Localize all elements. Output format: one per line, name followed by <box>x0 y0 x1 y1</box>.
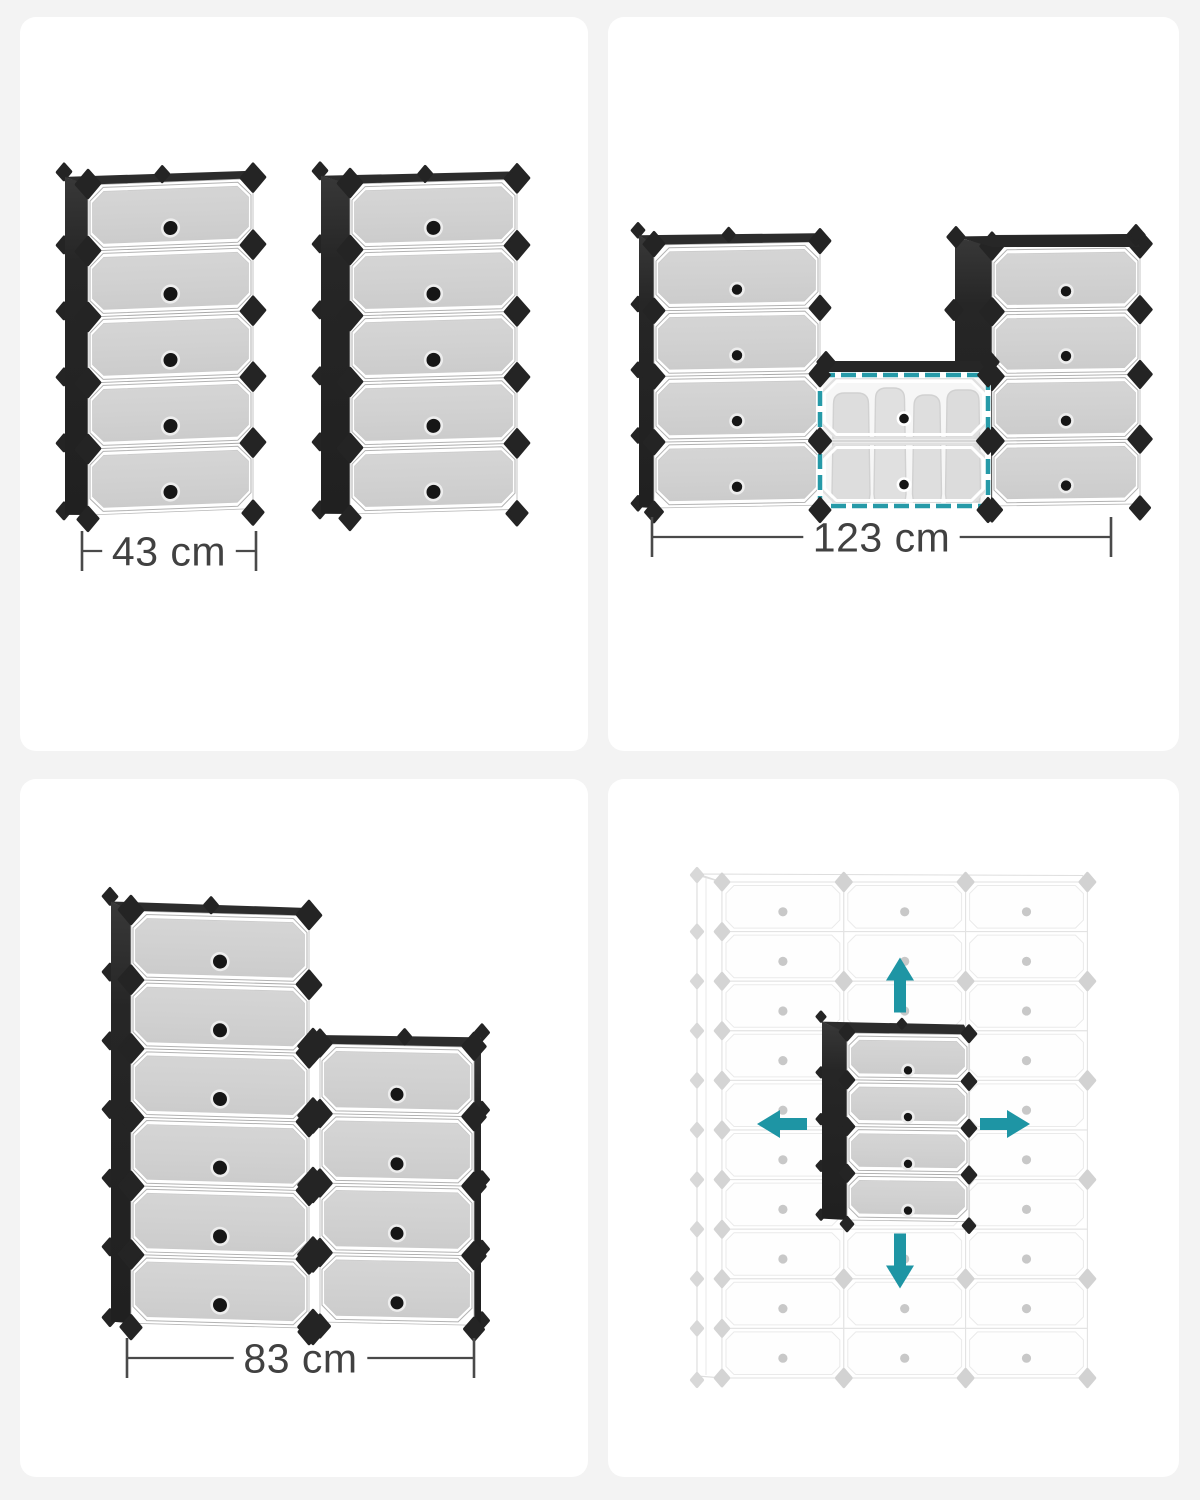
svg-text:123 cm: 123 cm <box>813 515 950 561</box>
svg-text:43 cm: 43 cm <box>112 529 226 575</box>
svg-text:83 cm: 83 cm <box>243 1336 357 1382</box>
